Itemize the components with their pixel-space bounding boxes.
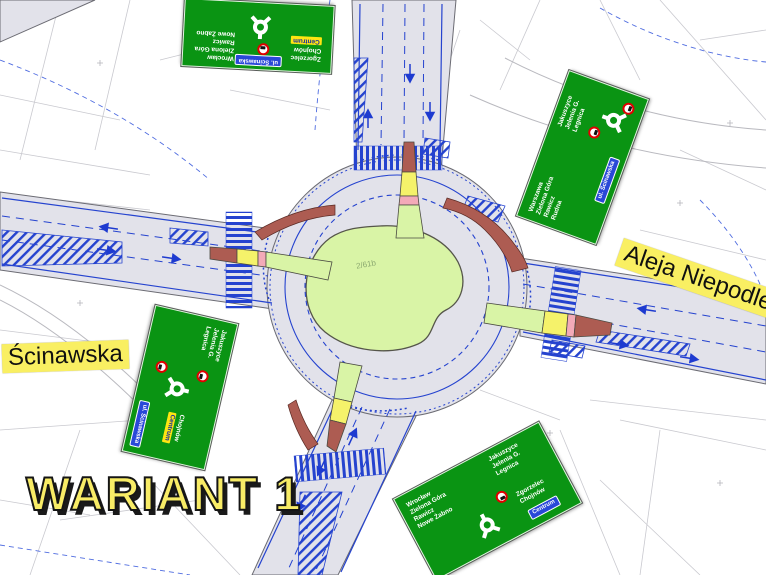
sign-destinations: Jakuszyce Jelenia G. Legnica: [556, 95, 590, 134]
roundabout-icon: [163, 374, 192, 403]
truck-ban-icon: [195, 369, 209, 383]
street-label-scinawska: Ścinawska: [2, 340, 130, 373]
corner-road-stub: [0, 0, 95, 42]
sign-destinations: Chojnów Centrum: [162, 412, 185, 446]
sign-destinations: Wrocław Zielona Góra Rawicz Nowe Żabno: [405, 484, 455, 531]
sign-destinations: Jakuszyce Jelenia G. Legnica: [197, 325, 228, 362]
centrum-highlight: Centrum: [291, 36, 322, 46]
street-name-plate: ul. Ścinawska: [129, 399, 150, 448]
sign-destinations: Warszawa Zielona Góra Rawicz Rudna: [528, 173, 572, 221]
variant-title: WARIANT 1: [26, 466, 303, 521]
sign-destinations: Jakuszyce Jelenia G. Legnica: [487, 442, 527, 478]
direction-sign-top-left: Zgorzelec Chojnów Centrum Wrocław Zielon…: [181, 0, 334, 74]
truck-ban-icon: [257, 43, 270, 56]
roundabout-icon: [248, 15, 273, 40]
truck-ban-icon: [154, 360, 168, 374]
roundabout-plan-canvas: 2/61b Zgorzelec Chojnów Centrum Wrocław …: [0, 0, 766, 575]
sign-destinations: Zgorzelec Chojnów Centrum: [290, 36, 322, 63]
truck-ban-icon: [494, 489, 510, 505]
street-name-plate: ul. Ścinawska: [234, 54, 282, 67]
sign-destinations: Wrocław Zielona Góra Rawicz Nowe Żabno: [194, 28, 235, 62]
roundabout-icon: [471, 509, 503, 541]
